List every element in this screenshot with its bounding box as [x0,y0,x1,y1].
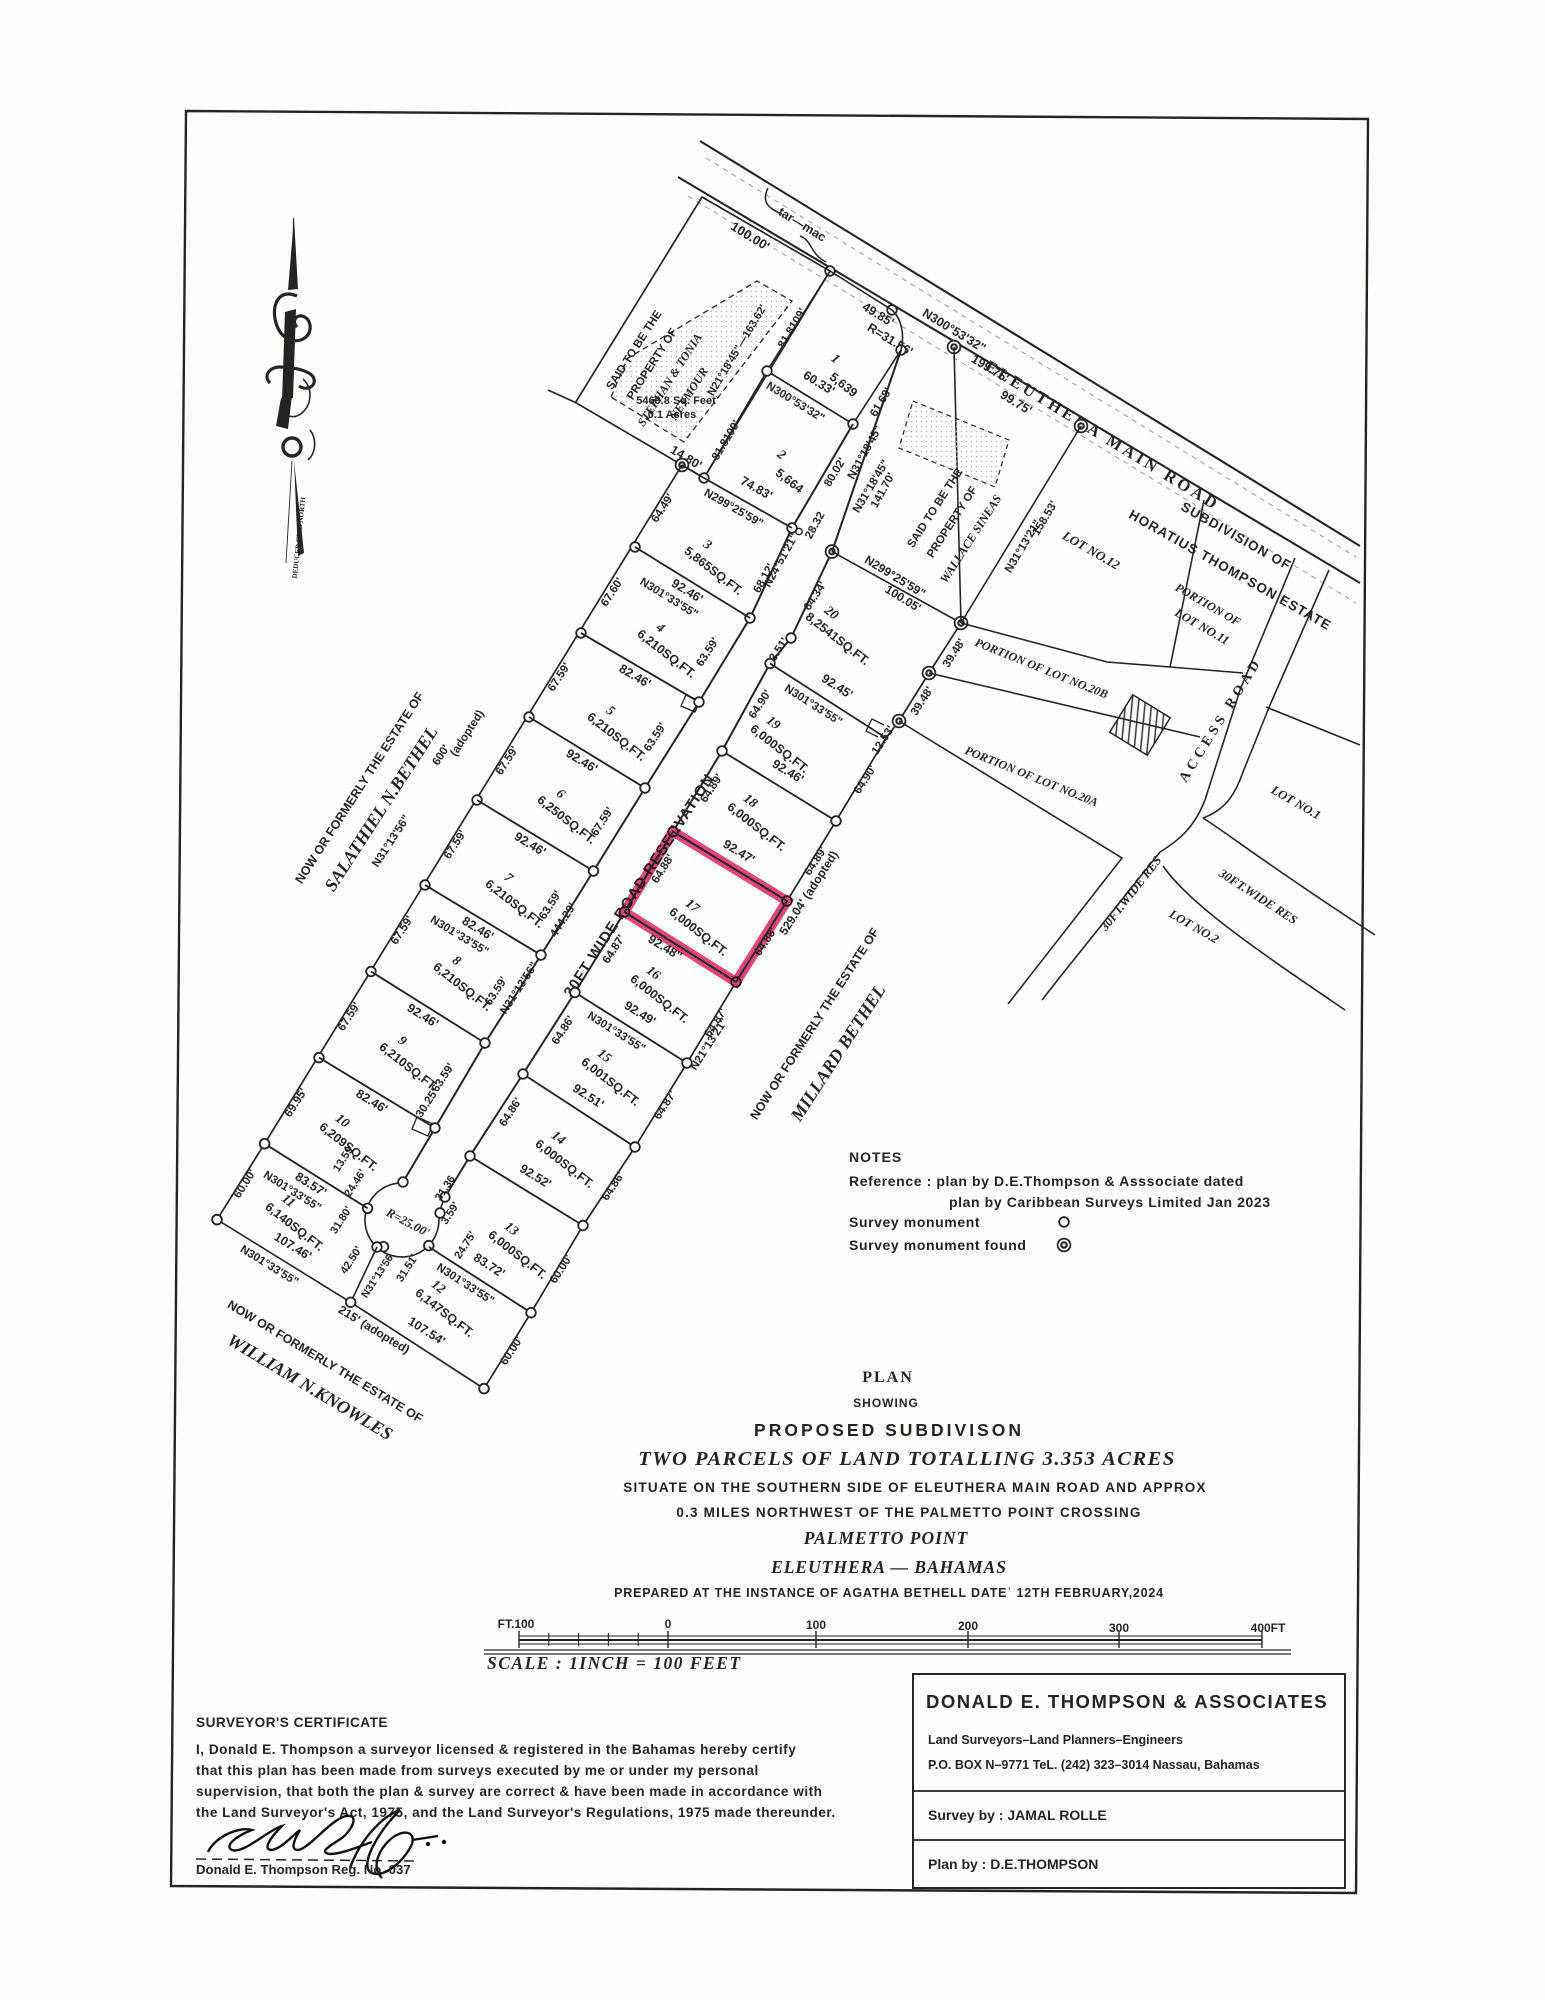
svg-text:SCALE : 1INCH = 100 FEET: SCALE : 1INCH = 100 FEET [487,1653,742,1673]
svg-text:SHOWING: SHOWING [853,1396,919,1410]
svg-text:Land Surveyors–Land Planners–E: Land Surveyors–Land Planners–Engineers [928,1733,1183,1747]
svg-text:plan by Caribbean Surveys Limi: plan by Caribbean Surveys Limited Jan 20… [949,1194,1271,1210]
svg-text:SURVEYOR'S CERTIFICATE: SURVEYOR'S CERTIFICATE [196,1715,388,1730]
svg-text:PREPARED AT THE INSTANCE O: PREPARED AT THE INSTANCE OF AGATHA BETHE… [614,1586,1164,1600]
svg-text:NOTES: NOTES [849,1149,902,1165]
svg-text:300: 300 [1109,1621,1129,1635]
svg-text:Reference : plan by D.E.Thomps: Reference : plan by D.E.Thompson & Assso… [849,1173,1244,1189]
svg-text:supervision, that both the pla: supervision, that both the plan & survey… [196,1784,822,1799]
svg-text:Survey by : JAMAL ROLLE: Survey by : JAMAL ROLLE [928,1807,1107,1823]
svg-text:TWO PARCELS OF LAND TOTALL: TWO PARCELS OF LAND TOTALLING 3.353 ACRE… [638,1448,1175,1470]
svg-text:the Land Surveyor's Act, 1975,: the Land Surveyor's Act, 1975, and the L… [196,1805,836,1820]
svg-text:FT.100: FT.100 [498,1617,535,1631]
svg-text:Survey monument found: Survey monument found [849,1237,1027,1253]
svg-text:100: 100 [806,1618,826,1632]
svg-text:that this plan has been made f: that this plan has been made from survey… [196,1763,759,1778]
svg-text:P.O. BOX N–9771 TeL. (242) 323: P.O. BOX N–9771 TeL. (242) 323–3014 Nass… [928,1758,1260,1772]
svg-text:I, Donald E. Thompson a survey: I, Donald E. Thompson a surveyor license… [196,1742,796,1757]
svg-text:PALMETTO POINT: PALMETTO POINT [803,1528,969,1548]
svg-text:PLAN: PLAN [862,1369,914,1386]
svg-text:DONALD E. THOMPSON & ASSOC: DONALD E. THOMPSON & ASSOCIATES [926,1691,1328,1712]
svg-text:PROPOSED SUBDIVISON: PROPOSED SUBDIVISON [754,1420,1024,1440]
svg-text:SITUATE ON THE SOUTHERN SI: SITUATE ON THE SOUTHERN SIDE OF ELEUTHER… [623,1480,1206,1495]
svg-text:Donald E. Thompson Reg. No. 03: Donald E. Thompson Reg. No. 037 [196,1862,411,1877]
svg-text:200: 200 [958,1619,978,1633]
svg-text:Survey monument: Survey monument [849,1214,980,1230]
svg-text:0: 0 [665,1617,672,1631]
svg-text:Plan by : D.E.THOMPSON: Plan by : D.E.THOMPSON [928,1856,1098,1872]
svg-text:ELEUTHERA — BAHAMAS: ELEUTHERA — BAHAMAS [770,1557,1007,1577]
svg-text:400FT: 400FT [1251,1621,1286,1635]
svg-text:0.3 MILES NORTHWEST OF THE: 0.3 MILES NORTHWEST OF THE PALMETTO POIN… [676,1505,1141,1520]
